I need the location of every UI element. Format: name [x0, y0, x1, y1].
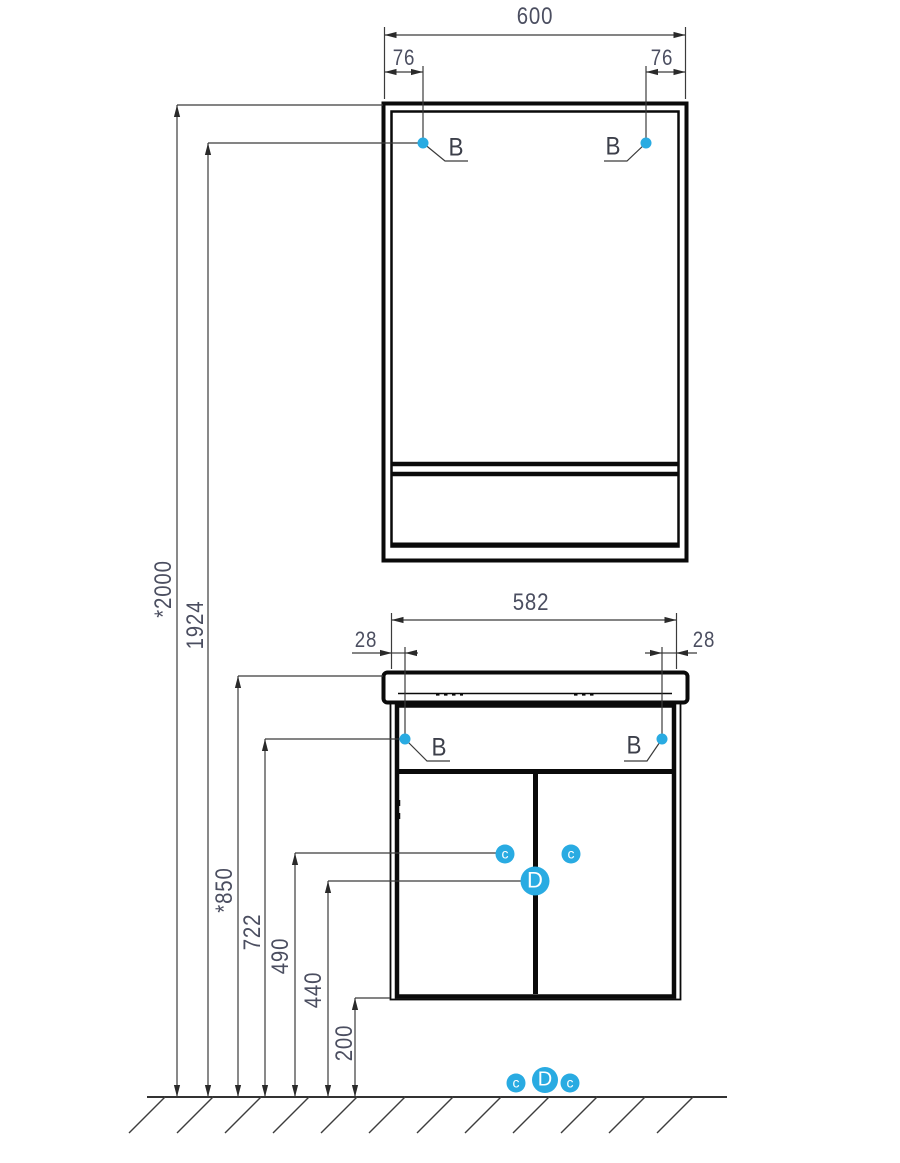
- height-cabinet-bracket-label: 722: [241, 914, 265, 951]
- bubble-label-d-door: D: [527, 870, 543, 892]
- vanity-offset-left-label: 28: [355, 629, 378, 651]
- bracket-point-cab-left: [400, 734, 411, 745]
- callout-b-cab-right: B: [626, 734, 641, 759]
- mirror-width-label: 600: [517, 5, 554, 29]
- height-callout-d-label: 440: [302, 972, 326, 1009]
- height-callout-c-label: 490: [269, 938, 293, 975]
- floor-hatching: [129, 1097, 693, 1133]
- vanity-width-label: 582: [513, 591, 550, 615]
- height-total-label: *2000: [152, 560, 176, 618]
- callout-b-mirror-left: B: [448, 136, 463, 161]
- height-cabinet-bottom-label: 200: [333, 1025, 357, 1062]
- installation-drawing: 600 76 76 582 28 28 *2000 1924 *850 722 …: [0, 0, 900, 1163]
- height-countertop-label: *850: [213, 867, 237, 912]
- bracket-point-mirror-right: [641, 138, 652, 149]
- height-mirror-bracket-label: 1924: [184, 601, 208, 650]
- vanity-cabinet: [384, 673, 688, 1000]
- mirror-offset-left-label: 76: [393, 47, 416, 69]
- bubble-label-c-floor-right: c: [567, 1076, 574, 1090]
- vanity-offset-right-label: 28: [693, 629, 716, 651]
- countertop: [384, 673, 688, 703]
- bracket-point-cab-right: [657, 734, 668, 745]
- drawing-canvas: [0, 0, 900, 1163]
- bubble-label-d-floor: D: [538, 1070, 552, 1090]
- bracket-point-mirror-left: [418, 138, 429, 149]
- bubble-label-c-door-right: c: [568, 847, 575, 861]
- mirror-offset-right-label: 76: [651, 47, 674, 69]
- bubble-label-c-door-left: c: [502, 847, 509, 861]
- bubble-label-c-floor-left: c: [513, 1076, 520, 1090]
- callout-b-mirror-right: B: [605, 135, 620, 160]
- mirror-cabinet-outer-frame: [384, 104, 687, 561]
- floor: [129, 1097, 727, 1133]
- mirror-cabinet: [384, 104, 687, 561]
- callout-b-cab-left: B: [431, 736, 446, 761]
